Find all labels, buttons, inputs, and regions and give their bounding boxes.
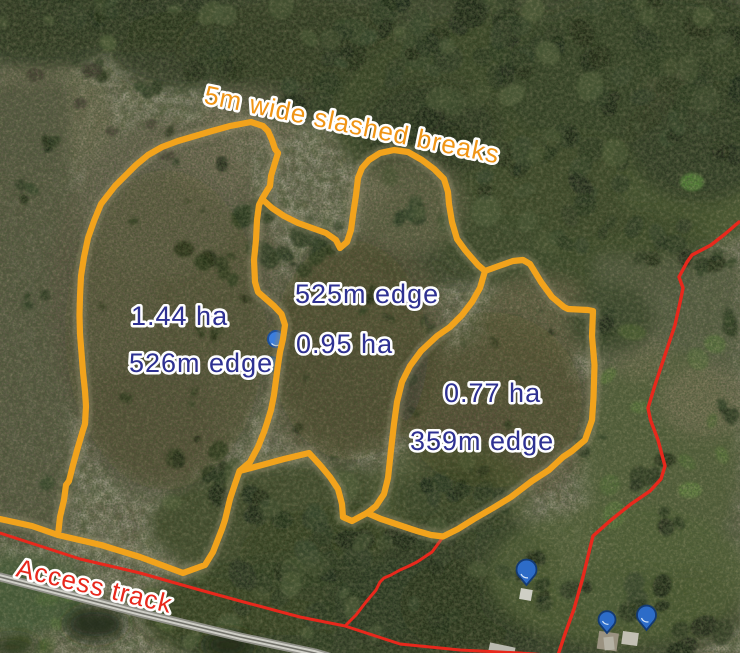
svg-text:359m edge: 359m edge: [410, 426, 554, 456]
svg-text:0.95 ha: 0.95 ha: [296, 329, 393, 359]
svg-text:525m edge: 525m edge: [295, 279, 439, 309]
svg-text:0.77 ha: 0.77 ha: [444, 378, 541, 408]
svg-text:1.44 ha: 1.44 ha: [131, 301, 228, 331]
svg-text:526m edge: 526m edge: [129, 348, 273, 378]
